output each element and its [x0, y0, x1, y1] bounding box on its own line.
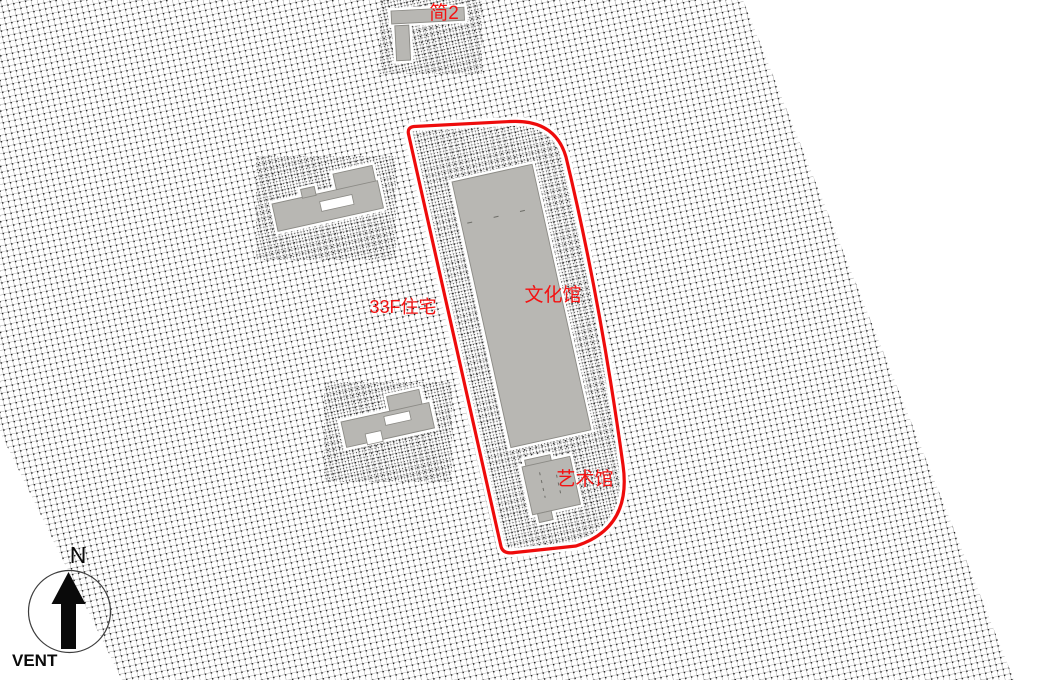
label-top-building: 简2 [429, 2, 459, 24]
site-mesh-canvas[interactable]: 简2 33F住宅 文化馆 艺术馆 N VENT [0, 0, 1040, 680]
vent-label: VENT [12, 651, 58, 670]
label-art-hall: 艺术馆 [556, 468, 613, 490]
label-culture-hall: 文化馆 [524, 284, 581, 306]
north-label: N [70, 542, 87, 568]
viewport: 简2 33F住宅 文化馆 艺术馆 N VENT [0, 0, 1040, 680]
label-residential: 33F住宅 [369, 297, 436, 317]
